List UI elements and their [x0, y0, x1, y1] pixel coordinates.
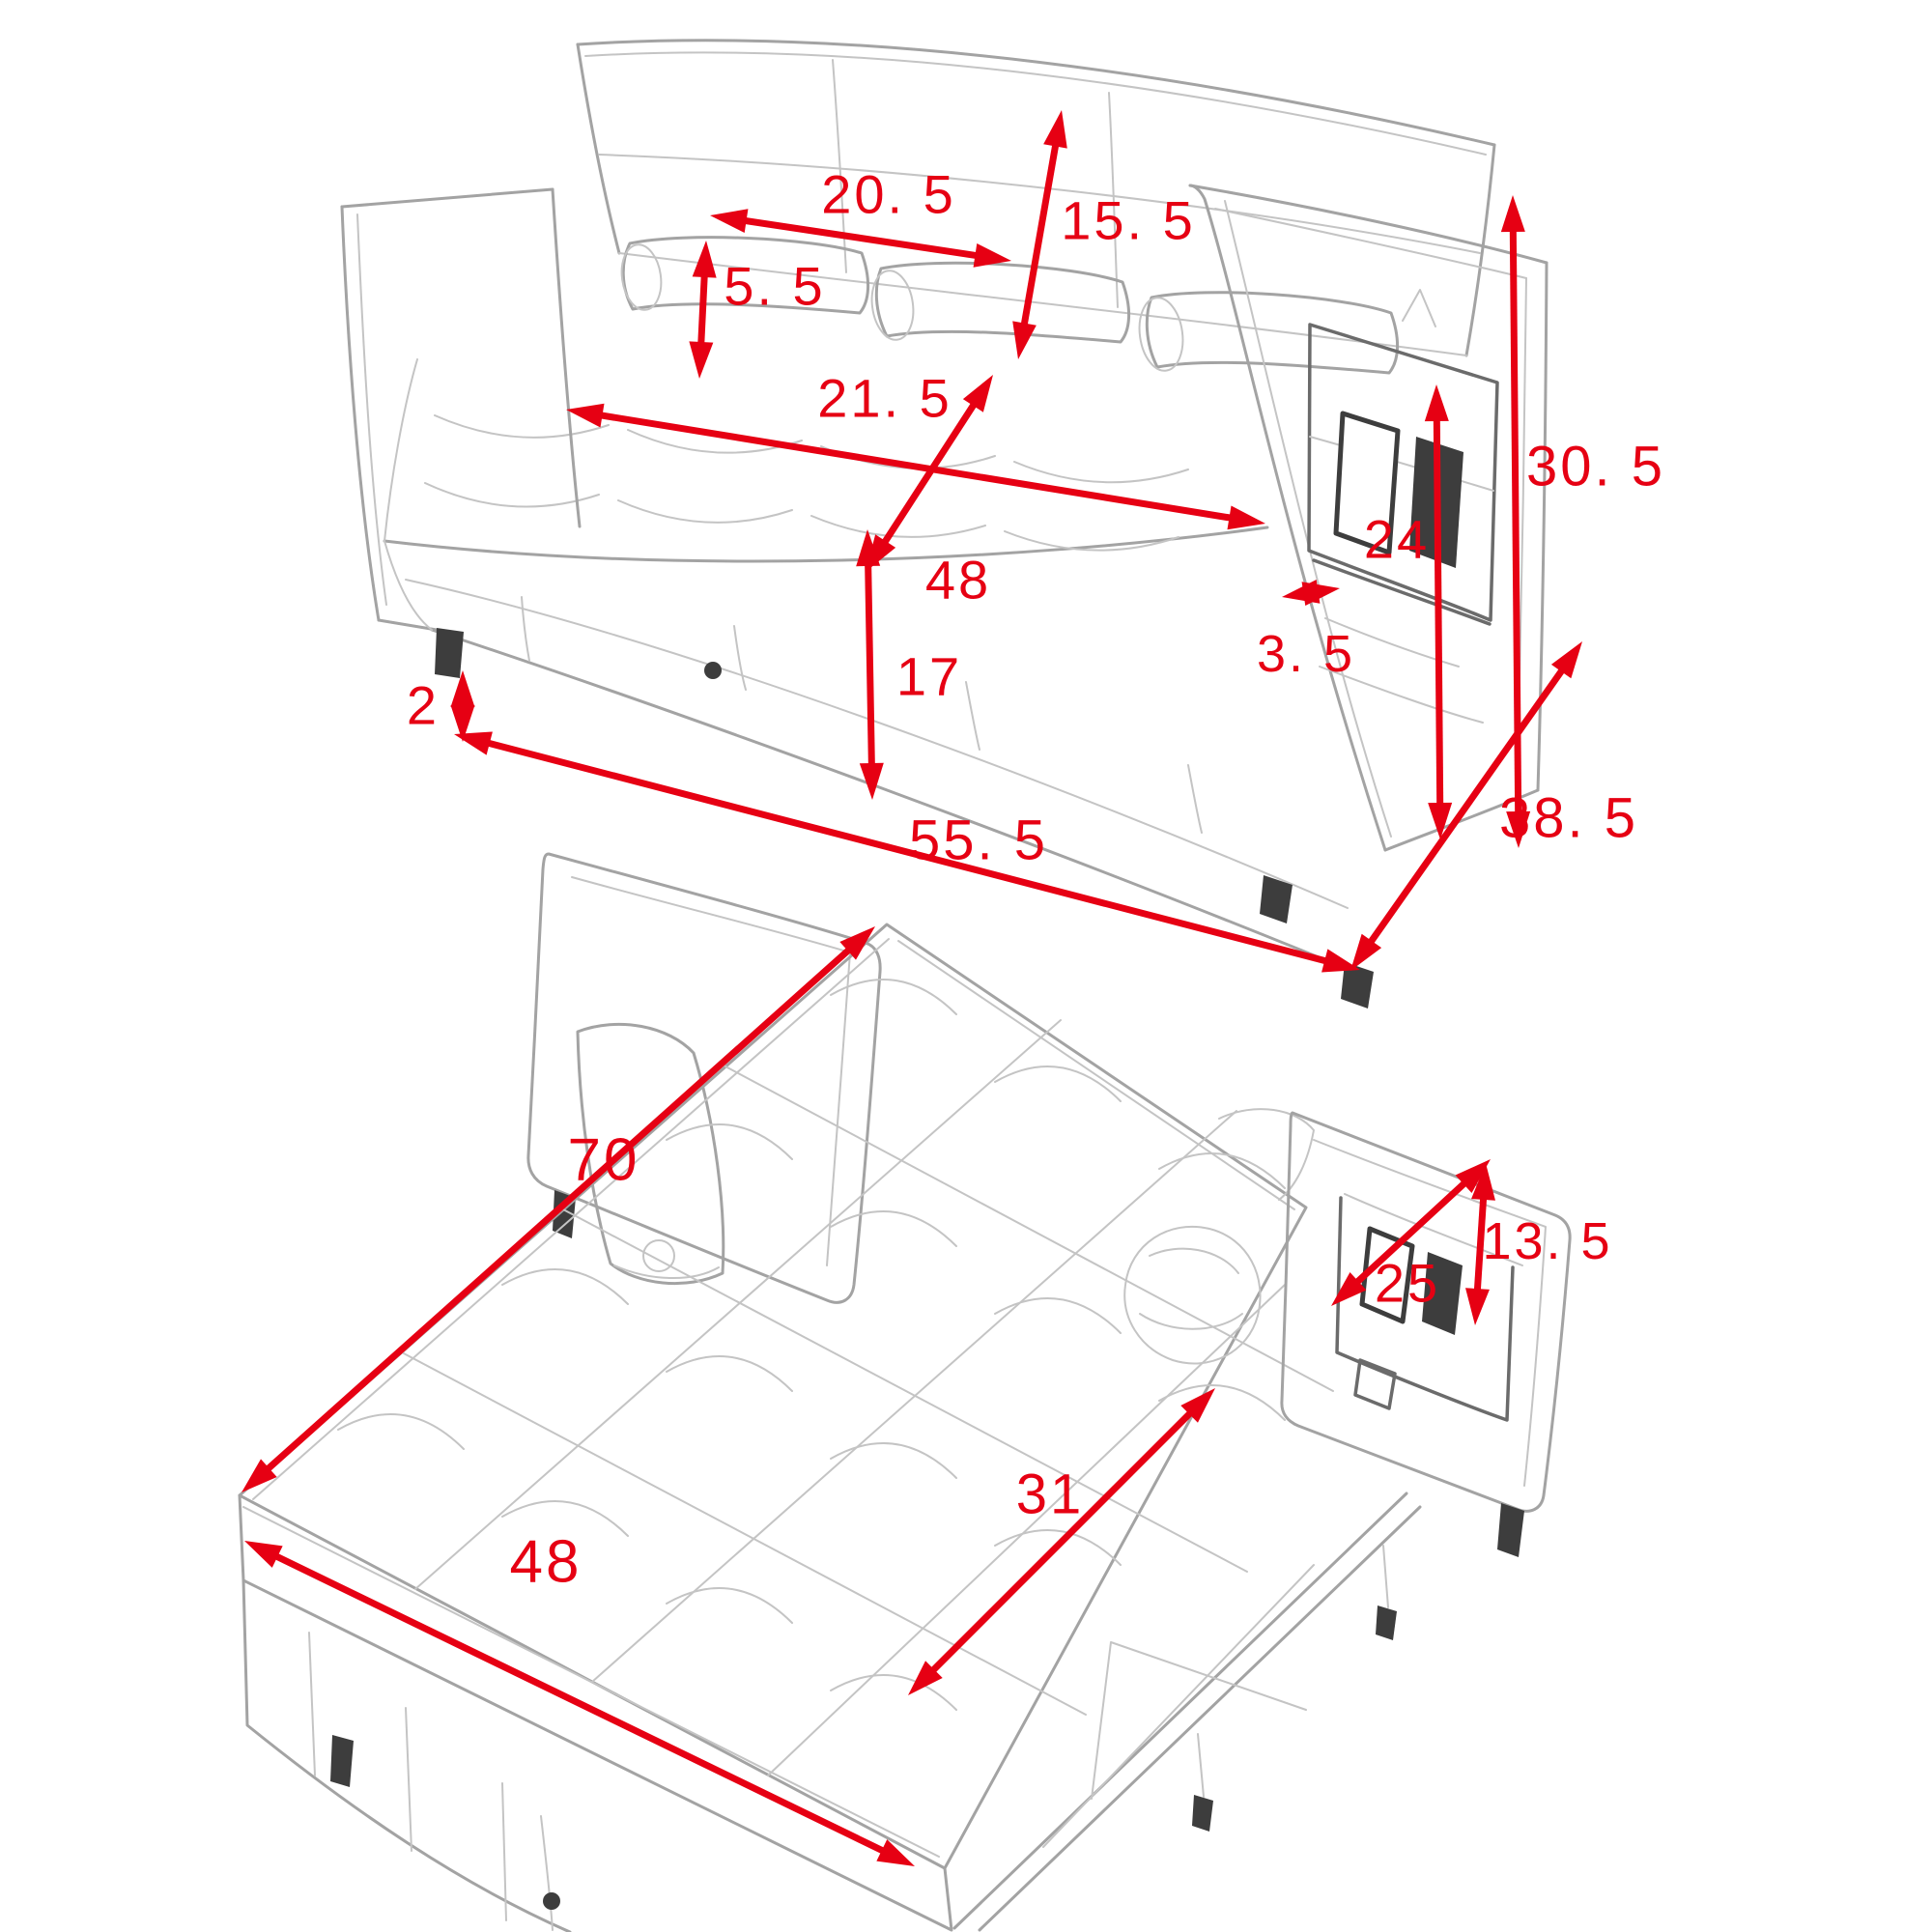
round-cushion — [1124, 1227, 1260, 1364]
dimension-label-bed-width: 48 — [510, 1529, 582, 1596]
arrowhead-icon — [1551, 641, 1582, 678]
arrowhead-icon — [1227, 506, 1265, 530]
dimension-label-side-pocket-height: 24 — [1364, 509, 1430, 570]
arrowhead-icon — [1350, 934, 1381, 971]
dimension-label-seat-depth: 21. 5 — [817, 368, 952, 429]
arrowhead-icon — [710, 209, 748, 233]
arrowhead-icon — [689, 341, 713, 379]
arrowhead-icon — [244, 1541, 283, 1568]
dimension-bolster-pillow-height: 5. 5 — [689, 241, 825, 379]
dimension-label-overall-height: 30. 5 — [1526, 435, 1665, 497]
dimension-armrest-thickness: 3. 5 — [1257, 580, 1355, 683]
arrowhead-icon — [1425, 384, 1449, 421]
dimension-arrow-shaft — [478, 741, 1336, 964]
backrest — [578, 41, 1494, 355]
dimension-label-overall-depth: 38. 5 — [1499, 786, 1638, 849]
dimension-label-armrest-pocket-depth: 13. 5 — [1482, 1212, 1612, 1270]
dimension-leg-height: 2 — [407, 670, 475, 742]
dimension-arrow-shaft — [260, 943, 856, 1475]
dimension-armrest-pocket-depth: 13. 5 — [1465, 1163, 1613, 1325]
arrowhead-icon — [1043, 110, 1067, 149]
dimension-arrow-shaft — [867, 554, 871, 775]
dimension-label-leg-height: 2 — [407, 675, 440, 736]
dimension-backrest-height: 15. 5 — [1012, 110, 1196, 359]
dimension-label-overall-width: 55. 5 — [909, 809, 1048, 871]
dimension-label-pullout-extension: 31 — [1016, 1463, 1085, 1525]
bed-right-armrest — [1282, 1113, 1570, 1557]
bed-dimension-annotations: 7048312513. 5 — [241, 926, 1613, 1866]
sofa-bed-extended-sketch — [240, 854, 1570, 1932]
mattress — [240, 924, 1306, 1930]
arrowhead-icon — [1302, 582, 1340, 606]
dimension-pullout-extension: 31 — [908, 1388, 1215, 1695]
dimension-arrow-shaft — [700, 266, 704, 354]
pullout-frame — [954, 1493, 1420, 1930]
arrowhead-icon — [1465, 1288, 1490, 1325]
arrowhead-icon — [454, 731, 493, 754]
dimension-arrow-shaft — [591, 413, 1241, 520]
arrowhead-icon — [693, 241, 717, 278]
dimension-label-armrest-pocket-width: 25 — [1375, 1253, 1440, 1314]
arrowhead-icon — [1012, 321, 1037, 359]
bed-skirt — [243, 1580, 570, 1932]
arrowhead-icon — [1501, 195, 1525, 232]
arrowhead-icon — [566, 404, 605, 428]
dimension-overall-width: 55. 5 — [454, 731, 1360, 972]
bed-right-bolster — [1219, 1109, 1314, 1200]
dimension-label-back-cushion-width: 20. 5 — [821, 164, 956, 225]
dimension-bed-width: 48 — [244, 1529, 915, 1866]
left-armrest — [342, 189, 580, 630]
arrowhead-icon — [963, 375, 993, 412]
dimension-label-bolster-pillow-height: 5. 5 — [724, 256, 825, 317]
dimension-label-bed-length: 70 — [568, 1127, 640, 1194]
dimension-seat-depth: 21. 5 — [817, 368, 993, 572]
dimension-bed-length: 70 — [241, 926, 875, 1492]
bed-pocket-item — [1355, 1360, 1395, 1408]
sleeper-sofa-dimension-diagram: 20. 55. 515. 521. 54817243. 5230. 538. 5… — [0, 0, 1932, 1932]
dimension-overall-depth: 38. 5 — [1350, 641, 1638, 971]
dimension-label-armrest-thickness: 3. 5 — [1257, 625, 1355, 683]
dimension-label-seat-height: 17 — [896, 646, 962, 707]
dimension-label-backrest-height: 15. 5 — [1061, 190, 1196, 251]
dimension-arrow-shaft — [1436, 410, 1440, 814]
dimension-label-seat-width: 48 — [925, 550, 991, 611]
diagram-canvas: 20. 55. 515. 521. 54817243. 5230. 538. 5… — [0, 0, 1932, 1932]
dimension-seat-width: 48 — [566, 404, 1265, 611]
dimension-arrow-shaft — [925, 1406, 1197, 1677]
